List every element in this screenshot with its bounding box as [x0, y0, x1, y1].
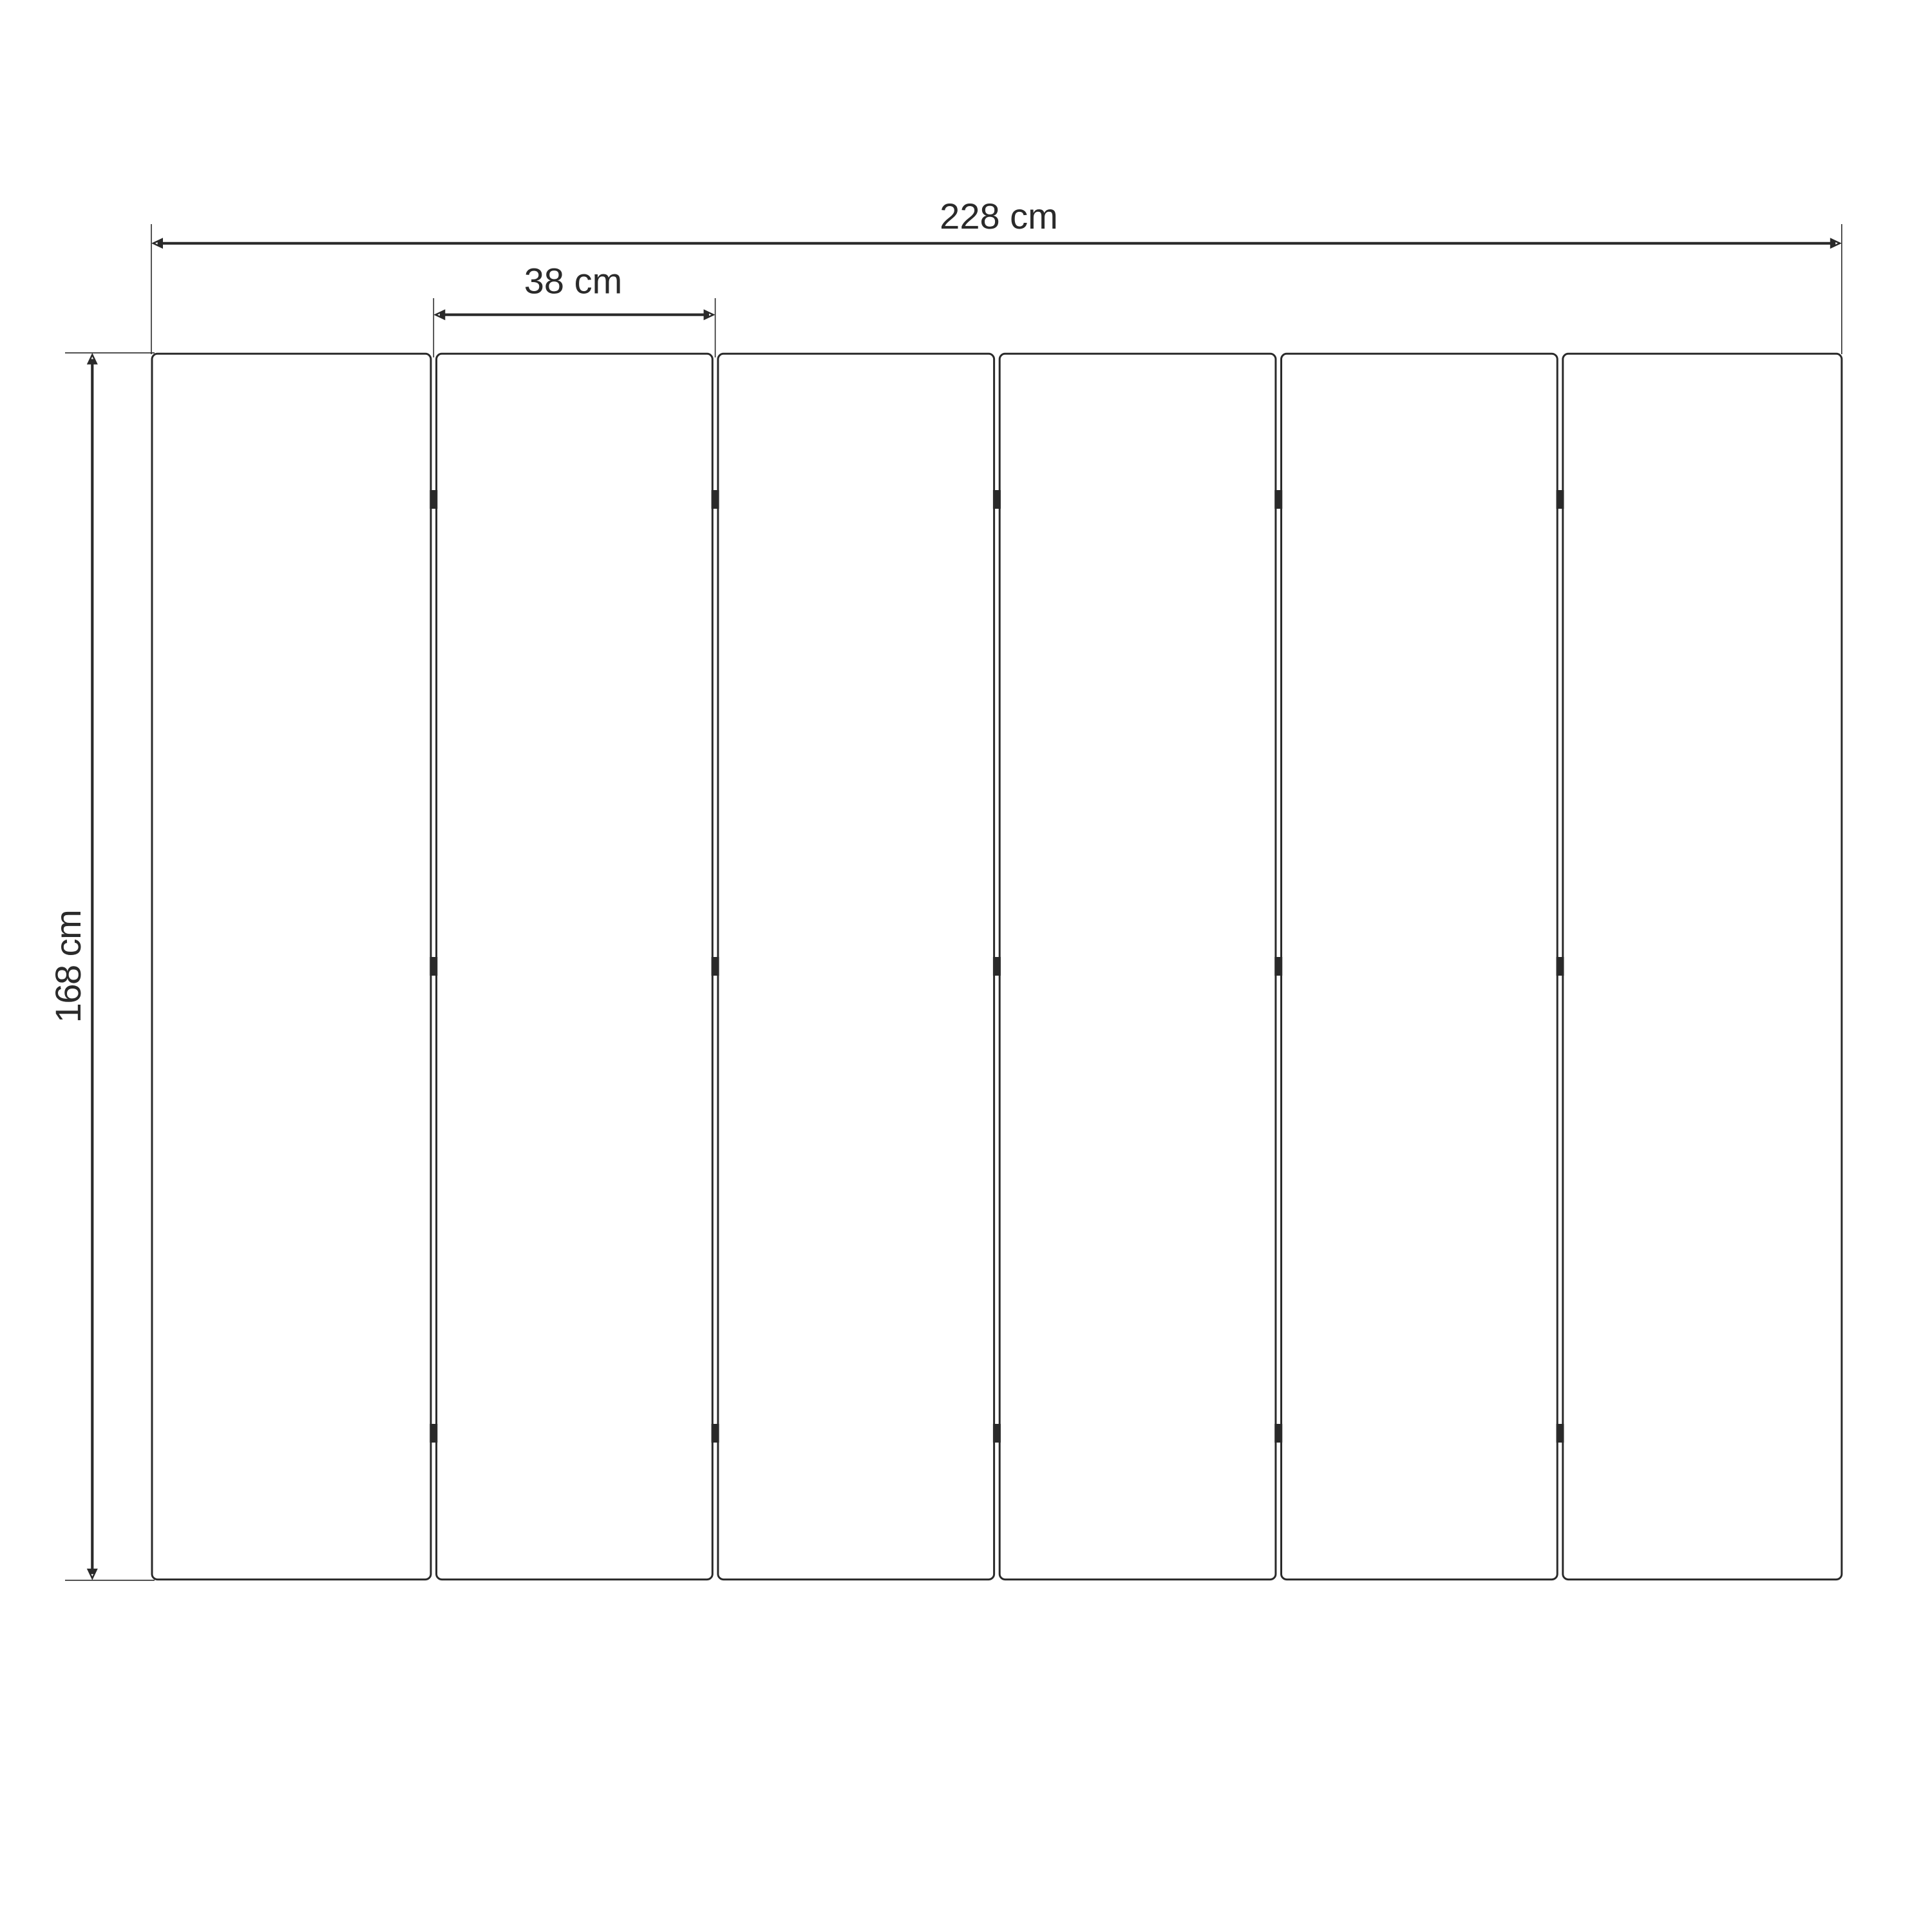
svg-text:38 cm: 38 cm [524, 261, 623, 301]
svg-text:168 cm: 168 cm [48, 911, 88, 1023]
svg-text:228 cm: 228 cm [940, 196, 1058, 236]
